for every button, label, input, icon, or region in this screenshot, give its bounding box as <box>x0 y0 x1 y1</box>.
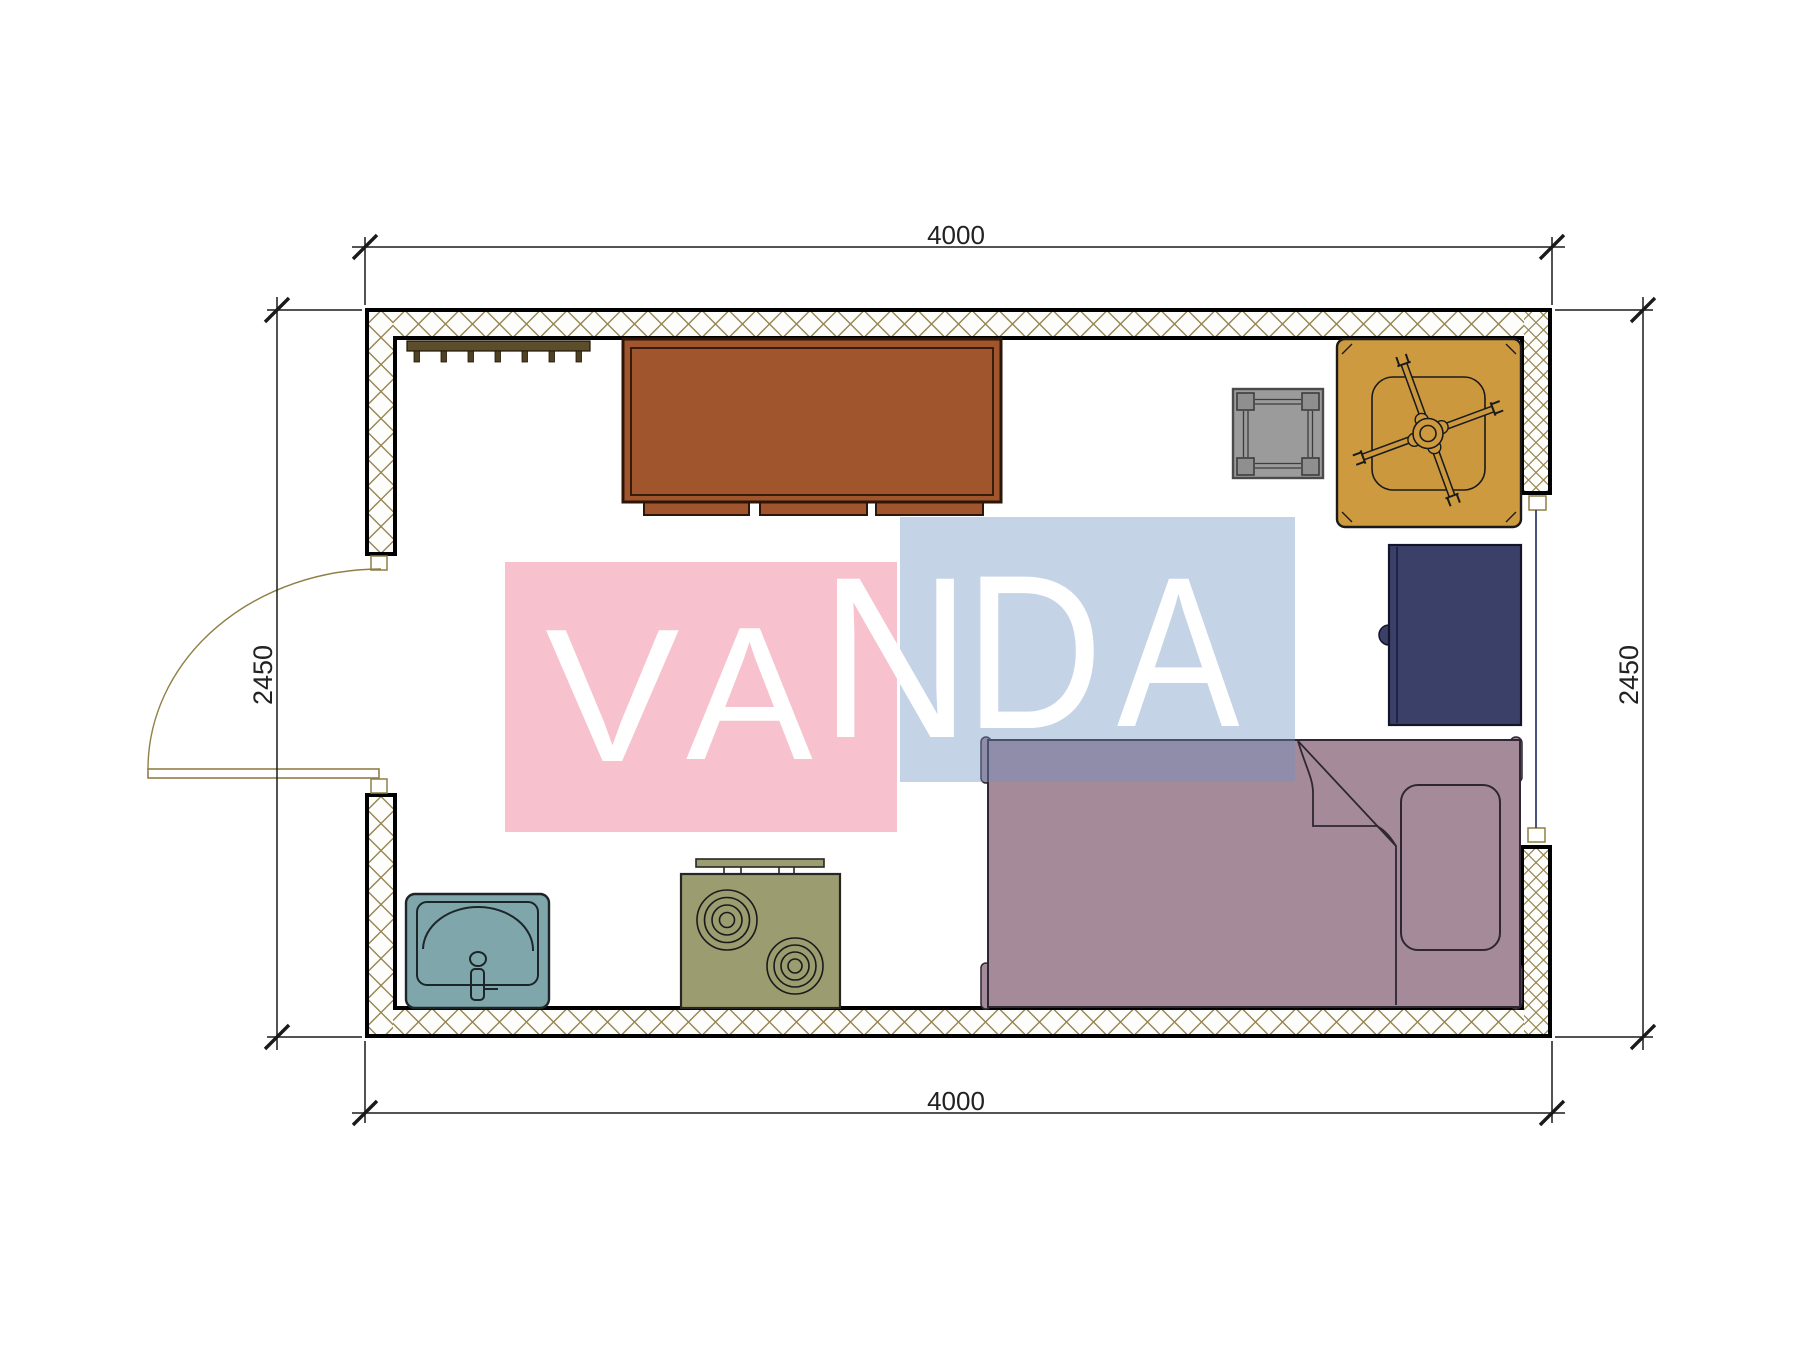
svg-text:V: V <box>545 590 679 802</box>
svg-text:A: A <box>1117 533 1240 772</box>
svg-text:D: D <box>965 528 1103 774</box>
svg-text:A: A <box>686 588 813 800</box>
svg-text:4000: 4000 <box>927 220 985 250</box>
svg-text:2450: 2450 <box>248 645 278 705</box>
svg-text:N: N <box>820 529 971 786</box>
svg-text:4000: 4000 <box>927 1086 985 1116</box>
svg-text:2450: 2450 <box>1614 645 1644 705</box>
